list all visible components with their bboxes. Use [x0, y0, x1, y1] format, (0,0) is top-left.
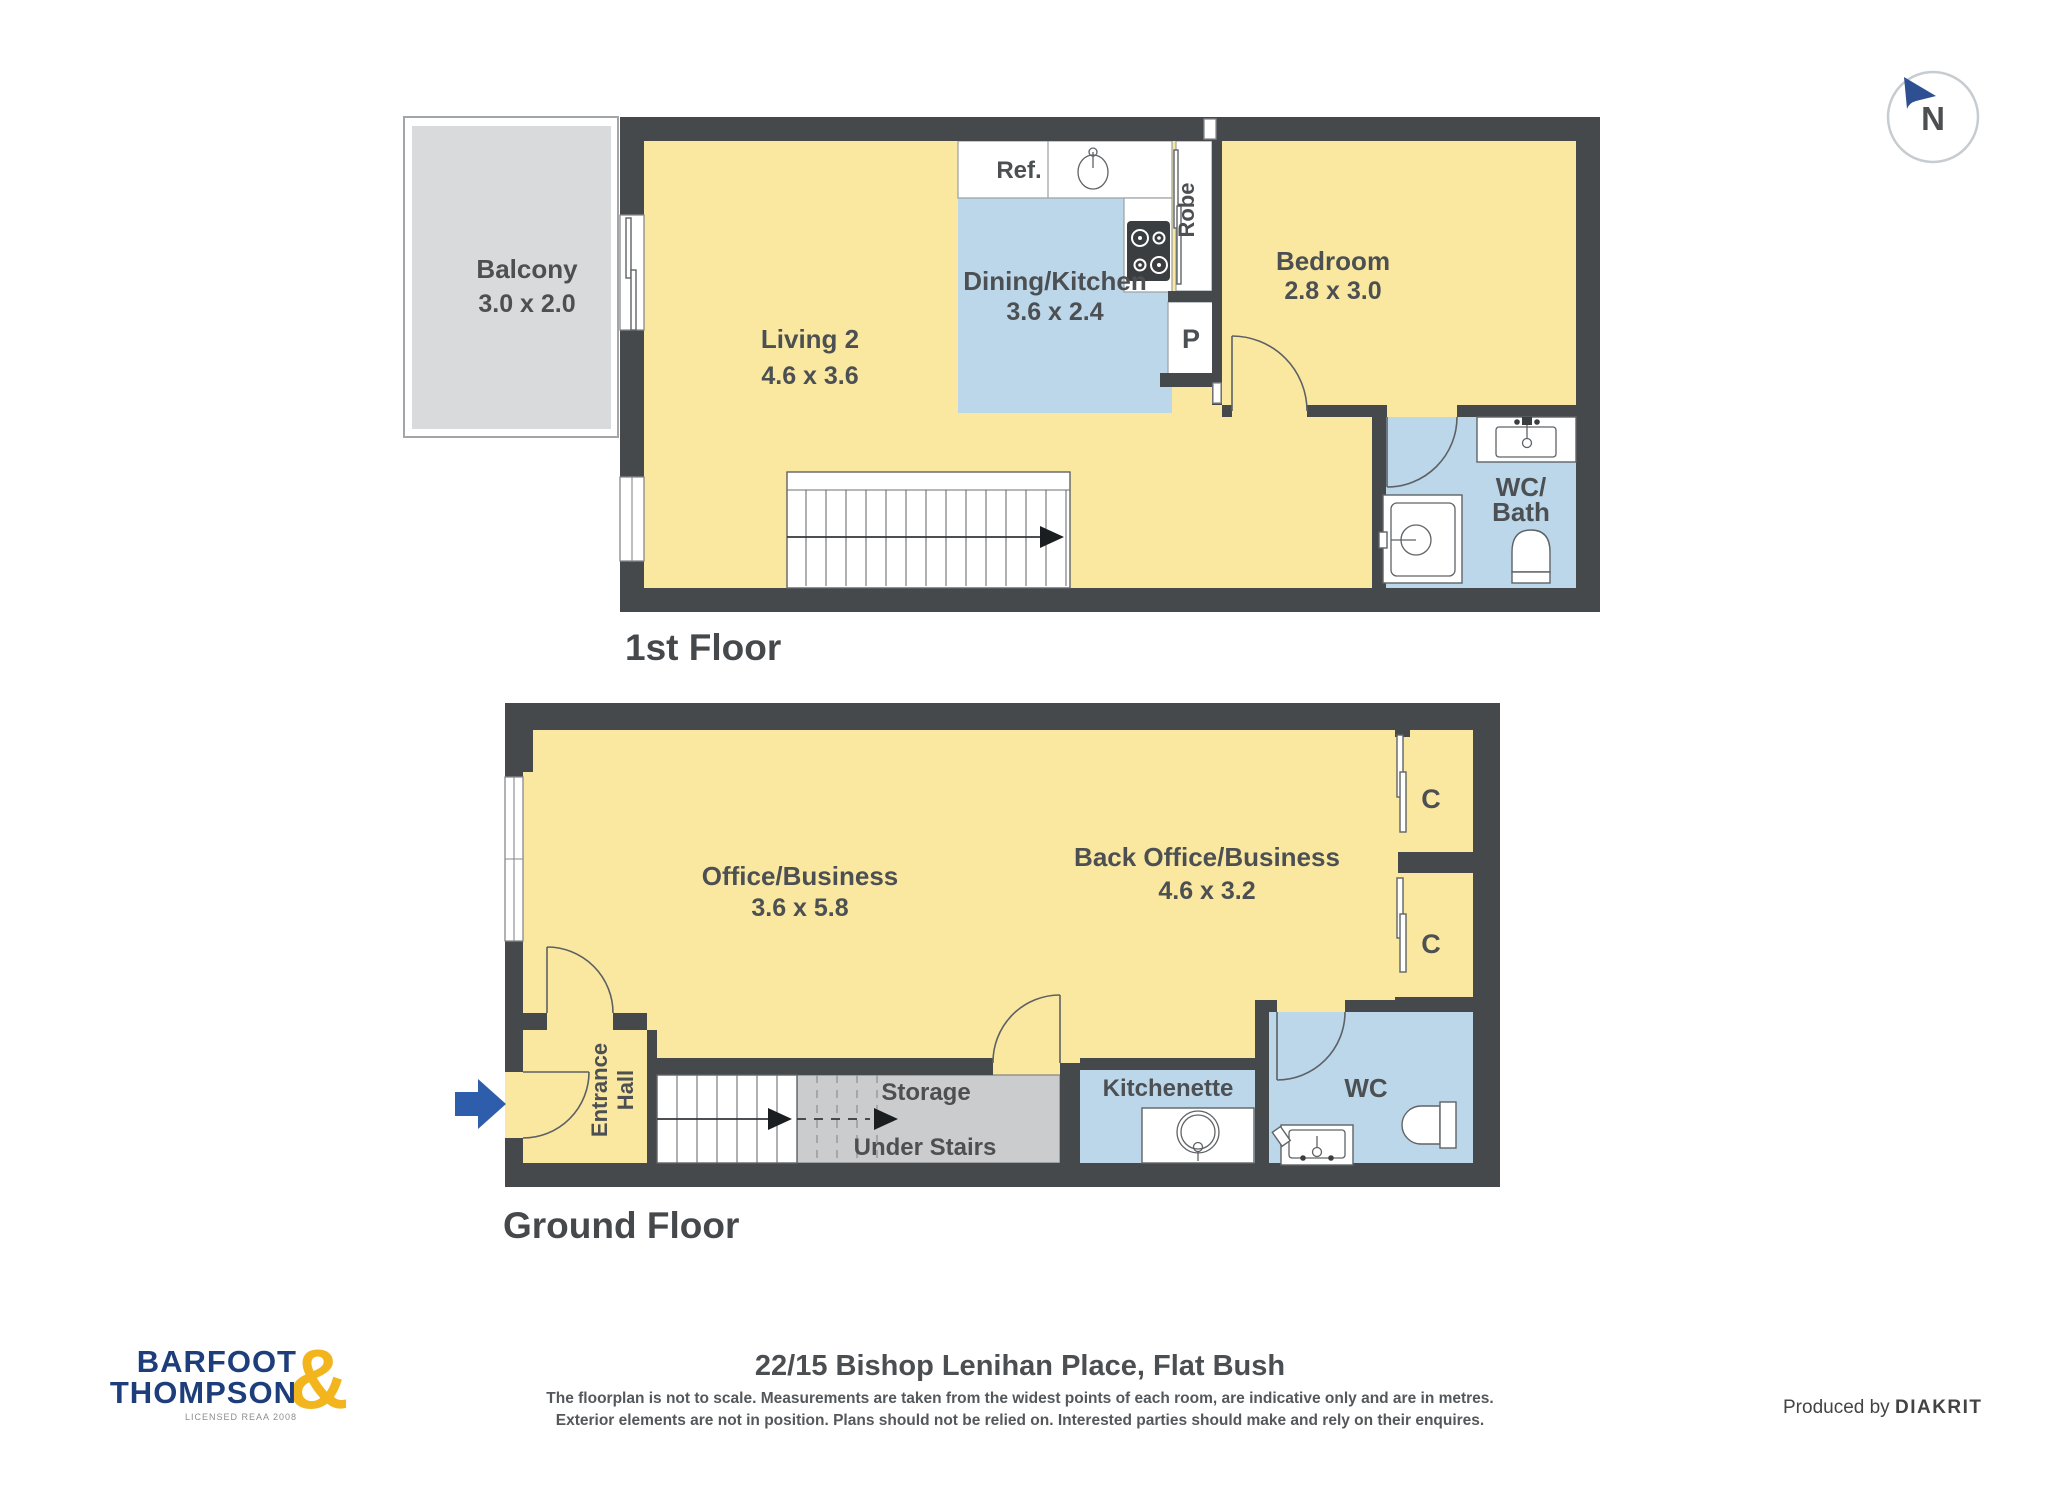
room-dims-bedroom: 2.8 x 3.0 — [1284, 277, 1381, 305]
room-label-office: Office/Business — [702, 861, 899, 891]
room-label-dining-kitchen: Dining/Kitchen — [963, 266, 1146, 296]
toilet — [1512, 530, 1550, 572]
closet2-slider-2 — [1400, 914, 1406, 972]
room-label-wc-line2: Bath — [1492, 497, 1550, 527]
compass: N — [1888, 72, 1978, 162]
closet1-slider-2 — [1400, 772, 1406, 832]
label-fridge: Ref. — [996, 157, 1041, 184]
wc-toilet — [1402, 1106, 1440, 1144]
floorplan-drawing: Balcony 3.0 x 2.0 Living 2 4.6 x 3.6 Din… — [0, 0, 2048, 1494]
room-dims-dining-kitchen: 3.6 x 2.4 — [1006, 298, 1103, 326]
jamb-bedroom — [1213, 383, 1221, 403]
disclaimer-line1: The floorplan is not to scale. Measureme… — [300, 1390, 1740, 1408]
label-robe: Robe — [1174, 183, 1199, 238]
entrance-arrow-icon — [455, 1079, 506, 1129]
produced-by-brand: DIAKRIT — [1895, 1397, 1983, 1418]
compass-north-label: N — [1921, 100, 1945, 137]
wc-toilet-cistern — [1440, 1102, 1456, 1148]
label-closet-2: C — [1421, 929, 1441, 959]
produced-by-prefix: Produced by — [1783, 1397, 1890, 1418]
disclaimer-line2: Exterior elements are not in position. P… — [300, 1412, 1740, 1430]
room-label-balcony: Balcony — [476, 254, 578, 284]
room-dims-back-office: 4.6 x 3.2 — [1158, 877, 1255, 905]
room-label-bedroom: Bedroom — [1276, 246, 1390, 276]
floorplan-page: Balcony 3.0 x 2.0 Living 2 4.6 x 3.6 Din… — [0, 0, 2048, 1494]
logo-ampersand-icon: & — [288, 1337, 349, 1421]
jamb-top — [1204, 119, 1216, 139]
barfoot-thompson-logo: BARFOOT THOMPSON LICENSED REAA 2008 — [85, 1346, 297, 1422]
room-label-living: Living 2 — [761, 324, 859, 354]
kitchen-counter — [958, 141, 1172, 198]
label-closet-1: C — [1421, 784, 1441, 814]
room-label-kitchenette: Kitchenette — [1103, 1075, 1234, 1102]
logo-line2: THOMPSON — [85, 1377, 297, 1408]
label-entrance-line2: Hall — [613, 1070, 638, 1110]
room-dims-living: 4.6 x 3.6 — [761, 362, 858, 390]
room-label-back-office: Back Office/Business — [1074, 842, 1340, 872]
room-dims-balcony: 3.0 x 2.0 — [478, 290, 575, 318]
room-dims-office: 3.6 x 5.8 — [751, 894, 848, 922]
produced-by: Produced by DIAKRIT — [1783, 1397, 1983, 1419]
label-pantry: P — [1182, 324, 1200, 354]
first-floor-plan: Balcony 3.0 x 2.0 Living 2 4.6 x 3.6 Din… — [404, 117, 1600, 668]
room-label-ground-wc: WC — [1344, 1073, 1388, 1103]
entrance-threshold — [505, 1072, 523, 1138]
logo-licensed: LICENSED REAA 2008 — [85, 1413, 297, 1422]
ground-floor-plan: Office/Business 3.6 x 5.8 Back Office/Bu… — [455, 703, 1500, 1246]
ground-floor-title: Ground Floor — [503, 1205, 739, 1246]
first-floor-stairs — [787, 472, 1070, 588]
shower — [1383, 495, 1462, 583]
label-entrance-line1: Entrance — [587, 1043, 612, 1137]
first-floor-title: 1st Floor — [625, 627, 781, 668]
label-storage-line1: Storage — [881, 1079, 970, 1106]
property-address: 22/15 Bishop Lenihan Place, Flat Bush — [400, 1350, 1640, 1383]
toilet-cistern — [1512, 572, 1550, 583]
label-storage-line2: Under Stairs — [854, 1134, 997, 1161]
logo-line1: BARFOOT — [85, 1346, 297, 1377]
